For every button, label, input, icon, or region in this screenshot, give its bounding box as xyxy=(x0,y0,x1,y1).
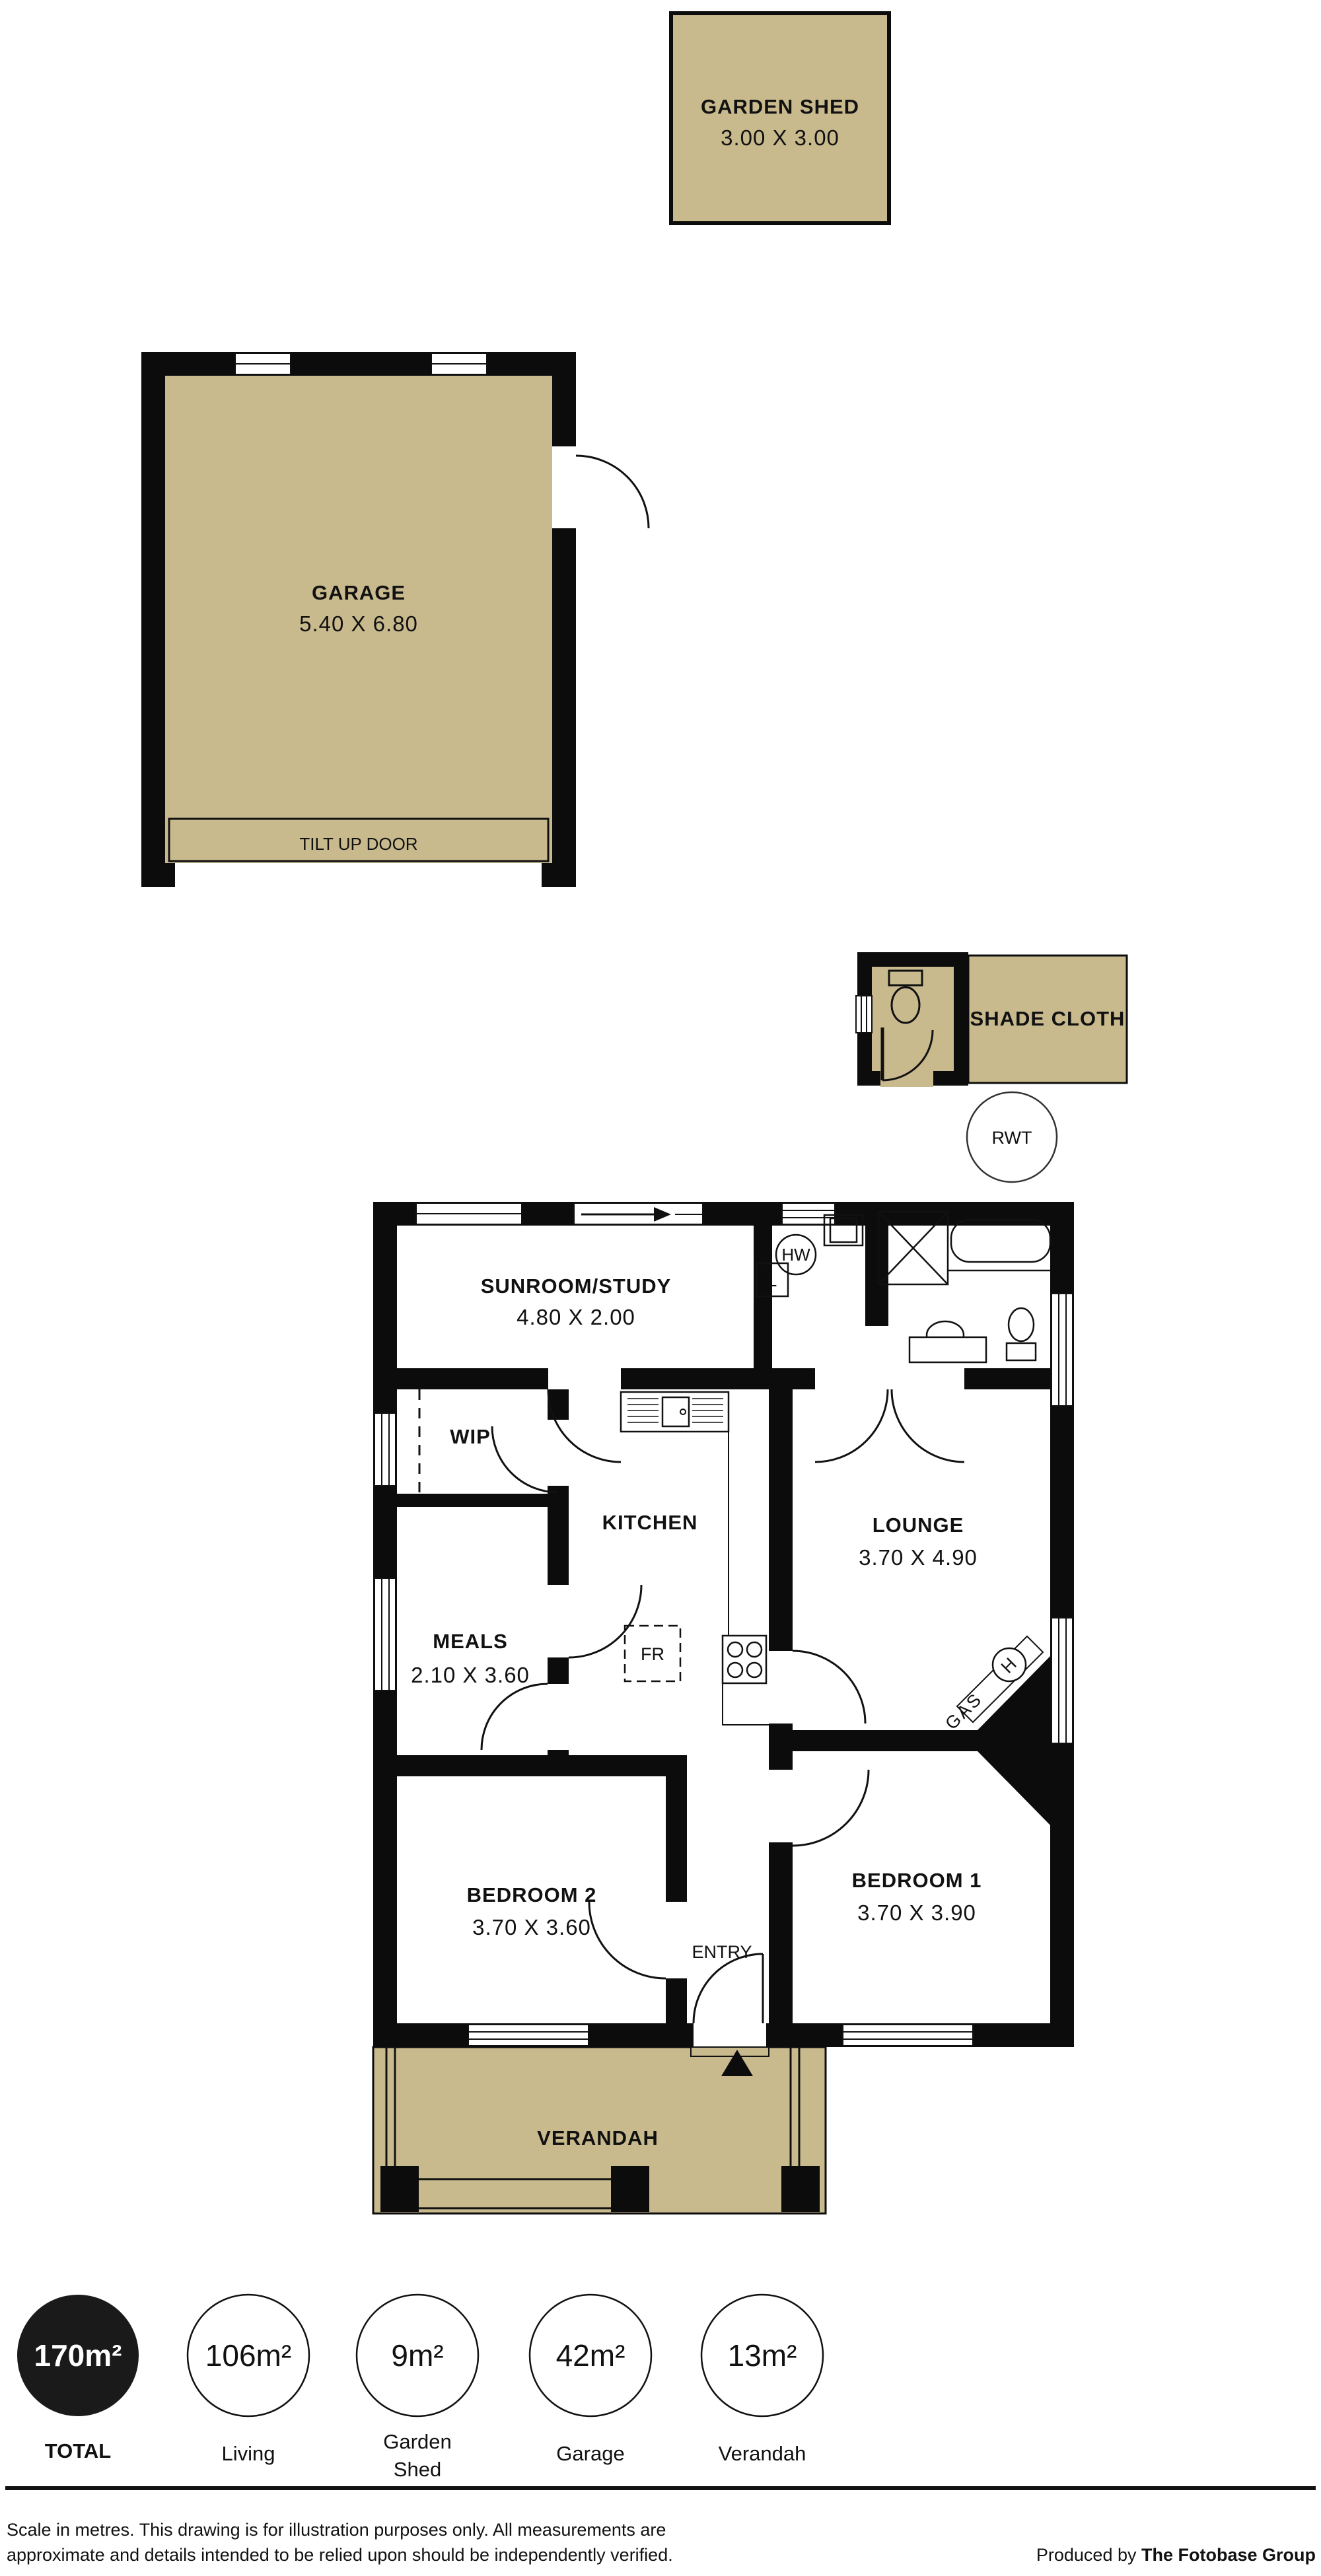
footer-producer: The Fotobase Group xyxy=(1141,2545,1316,2565)
bedroom2-window xyxy=(468,2025,589,2046)
laundry-trough-label: L xyxy=(768,1271,777,1290)
summary-verandah-label: Verandah xyxy=(719,2442,806,2465)
wip-window xyxy=(375,1413,396,1486)
garden-shed-floor xyxy=(671,13,889,223)
lounge-dims: 3.70 X 4.90 xyxy=(859,1545,978,1570)
garage-window-left xyxy=(235,353,291,374)
sink-bench-icon xyxy=(621,1392,729,1432)
summary-living-label: Living xyxy=(222,2442,275,2465)
footer-disclaimer-line1: Scale in metres. This drawing is for ill… xyxy=(7,2520,666,2540)
garage-tilt-door-label: TILT UP DOOR xyxy=(299,834,417,854)
kitchen-label: KITCHEN xyxy=(602,1511,698,1534)
summary-living-area: 106m² xyxy=(205,2338,291,2373)
summary-garden-shed-area: 9m² xyxy=(391,2338,443,2373)
sunroom-window xyxy=(416,1203,522,1224)
garage-label: GARAGE xyxy=(312,581,406,604)
wc-door-gap xyxy=(880,1070,933,1087)
hot-water-label: HW xyxy=(781,1245,810,1265)
bathroom-window xyxy=(1052,1294,1073,1406)
rainwater-tank: RWT xyxy=(967,1092,1057,1182)
verandah-post-right xyxy=(781,2166,820,2212)
footer-produced-by: Produced by xyxy=(1036,2545,1141,2565)
garden-shed-dims: 3.00 X 3.00 xyxy=(721,125,839,150)
summary-garden-shed-label1: Garden xyxy=(383,2430,451,2453)
meals-dims: 2.10 X 3.60 xyxy=(411,1663,530,1687)
wc-window xyxy=(856,996,872,1033)
sunroom-label: SUNROOM/STUDY xyxy=(481,1274,672,1298)
wc-floor xyxy=(872,967,954,1071)
garage: GARAGE 5.40 X 6.80 TILT UP DOOR xyxy=(141,352,649,887)
verandah: VERANDAH xyxy=(373,2047,826,2213)
garden-shed-label: GARDEN SHED xyxy=(701,95,859,118)
bedroom1-dims: 3.70 X 3.90 xyxy=(857,1900,976,1925)
bedroom1-label: BEDROOM 1 xyxy=(852,1869,982,1892)
house: HW L xyxy=(373,1202,1074,2076)
stove-icon xyxy=(723,1636,766,1683)
bedroom1-window xyxy=(843,2025,973,2046)
summary-total-label: TOTAL xyxy=(45,2439,111,2462)
summary-total-area: 170m² xyxy=(34,2338,122,2373)
garden-shed: GARDEN SHED 3.00 X 3.00 xyxy=(671,13,889,223)
lounge-window xyxy=(1052,1618,1073,1743)
verandah-label: VERANDAH xyxy=(537,2126,659,2149)
fridge-label: FR xyxy=(641,1644,664,1664)
shade-cloth-block: SHADE CLOTH xyxy=(856,952,1127,1087)
shade-cloth-label: SHADE CLOTH xyxy=(970,1007,1125,1030)
entry-threshold xyxy=(691,2047,769,2056)
garage-dims: 5.40 X 6.80 xyxy=(299,611,418,636)
floorplan-canvas: GARDEN SHED 3.00 X 3.00 GARAGE 5.40 X 6.… xyxy=(0,0,1321,2576)
footer-credit: Produced by The Fotobase Group xyxy=(1036,2545,1316,2565)
summary-verandah-area: 13m² xyxy=(728,2338,797,2373)
wip-label: WIP xyxy=(450,1425,491,1448)
entry-label: ENTRY xyxy=(692,1942,752,1962)
meals-window xyxy=(375,1578,396,1690)
garage-window-right xyxy=(431,353,487,374)
laundry-window xyxy=(782,1203,835,1224)
verandah-post-middle xyxy=(611,2166,649,2212)
footer-disclaimer-line2: approximate and details intended to be r… xyxy=(7,2545,673,2565)
garage-door-gap xyxy=(552,446,576,528)
verandah-post-left xyxy=(380,2166,419,2212)
lounge-label: LOUNGE xyxy=(873,1514,964,1537)
summary-garage-label: Garage xyxy=(556,2442,624,2465)
summary-garden-shed-label2: Shed xyxy=(394,2458,441,2481)
garage-opening xyxy=(175,863,542,887)
summary-garage-area: 42m² xyxy=(556,2338,625,2373)
bedroom2-dims: 3.70 X 3.60 xyxy=(472,1915,591,1939)
sliding-window xyxy=(574,1203,703,1224)
bedroom2-label: BEDROOM 2 xyxy=(467,1883,597,1906)
rwt-label: RWT xyxy=(992,1128,1032,1148)
meals-label: MEALS xyxy=(433,1630,508,1653)
sunroom-dims: 4.80 X 2.00 xyxy=(517,1305,635,1329)
